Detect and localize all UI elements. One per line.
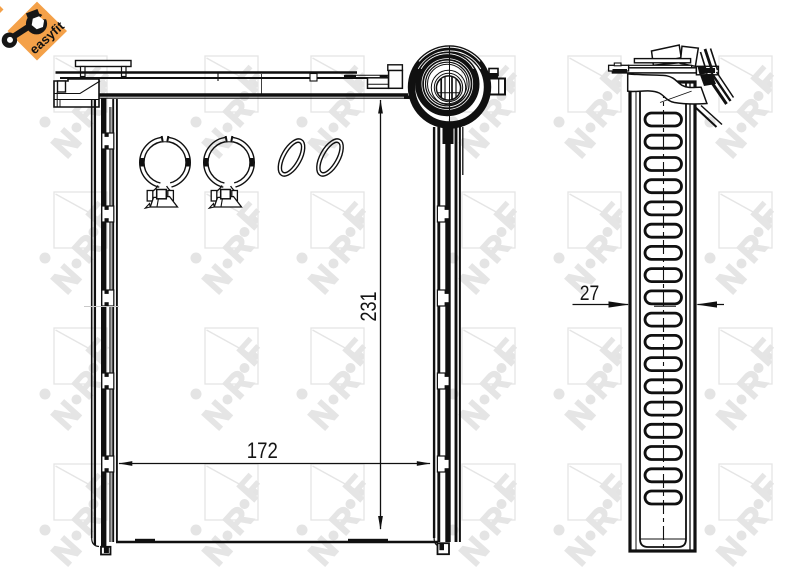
svg-text:172: 172 (247, 438, 278, 463)
svg-text:27: 27 (580, 282, 600, 305)
svg-text:231: 231 (356, 292, 381, 322)
